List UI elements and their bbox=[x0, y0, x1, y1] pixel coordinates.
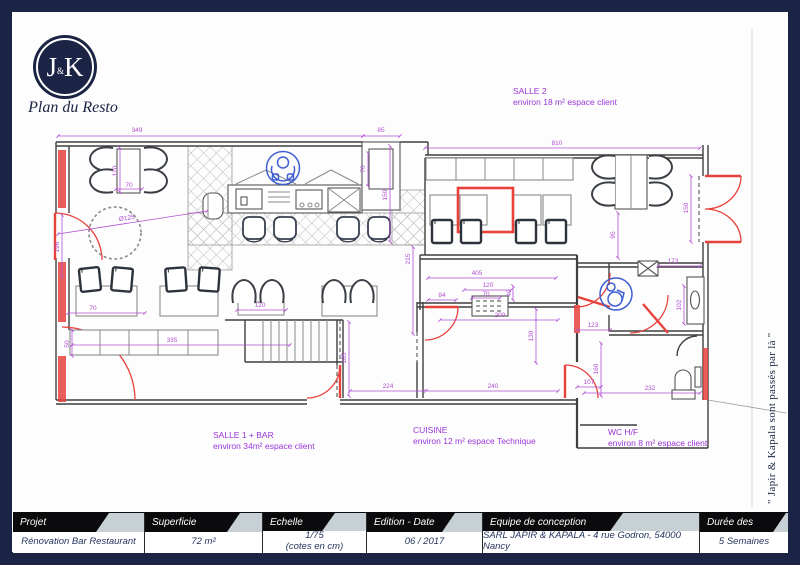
bartender-icon bbox=[267, 152, 300, 185]
room-info-salle2: environ 18 m² espace client bbox=[513, 97, 618, 107]
tb-header-edition-date: Edition - Date bbox=[367, 513, 455, 532]
tb-value-duree: 5 Semaines bbox=[700, 532, 788, 553]
tb-header-echelle: Echelle bbox=[263, 513, 335, 531]
dim-label: 224 bbox=[383, 383, 394, 390]
dim-label: 173 bbox=[668, 258, 679, 265]
dim-label: 107 bbox=[584, 379, 595, 386]
dim-label: 70 bbox=[89, 305, 97, 312]
dim-label: 200 bbox=[495, 312, 506, 319]
tb-col-duree: Durée des travaux 5 Semaines bbox=[700, 513, 788, 553]
dim-label: 50 bbox=[64, 340, 71, 348]
tb-col-echelle: Echelle 1/75(cotes en cm) bbox=[263, 513, 367, 553]
tb-col-equipe: Equipe de conception SARL JAPIR & KAPALA… bbox=[483, 513, 700, 553]
dim-label: 150 bbox=[683, 202, 690, 213]
dim-label: 185 bbox=[341, 352, 348, 363]
dim-label: 349 bbox=[132, 127, 143, 134]
room-label-salle2: SALLE 2 bbox=[513, 86, 547, 96]
room-info-cuisine: environ 12 m² espace Technique bbox=[413, 436, 536, 446]
tb-col-projet: Projet Rénovation Bar Restaurant bbox=[13, 513, 145, 553]
tb-col-superficie: Superficie 72 m² bbox=[145, 513, 263, 553]
dim-label: 215 bbox=[405, 253, 412, 264]
dim-label: 70 bbox=[125, 182, 133, 189]
dim-label: 150 bbox=[382, 189, 389, 200]
room-info-salle1: environ 34m² espace client bbox=[213, 441, 315, 451]
dim-label: 40 bbox=[506, 289, 513, 297]
dim-label: Ø125 bbox=[118, 214, 135, 223]
dim-label: 102 bbox=[676, 299, 683, 310]
wheelchair-icon bbox=[600, 278, 632, 310]
dim-label: 405 bbox=[472, 270, 483, 277]
dim-label: 95 bbox=[610, 231, 617, 239]
room-label-wc: WC H/F bbox=[608, 427, 638, 437]
dim-label: 85 bbox=[377, 127, 385, 134]
dim-label: 232 bbox=[645, 385, 656, 392]
dim-label: 196 bbox=[54, 241, 61, 252]
dim-label: 160 bbox=[593, 363, 600, 374]
stairs bbox=[263, 320, 327, 362]
title-block: Projet Rénovation Bar Restaurant Superfi… bbox=[13, 512, 788, 553]
room-label-cuisine: CUISINE bbox=[413, 425, 448, 435]
dim-label: 120 bbox=[255, 302, 266, 309]
room-info-wc: environ 8 m² espace client bbox=[608, 438, 708, 448]
room-labels: SALLE 2 environ 18 m² espace client SALL… bbox=[213, 86, 708, 451]
room-label-salle1: SALLE 1 + BAR bbox=[213, 430, 274, 440]
dim-label: 84 bbox=[438, 292, 446, 299]
floor-plan-svg: 349 85 810 120 70 Ø125 196 70 50 335 120… bbox=[0, 0, 800, 565]
tb-value-superficie: 72 m² bbox=[145, 532, 262, 553]
dim-label: 240 bbox=[488, 383, 499, 390]
dim-label: 335 bbox=[167, 337, 178, 344]
tb-value-edition-date: 06 / 2017 bbox=[367, 532, 482, 553]
dim-label: 70 bbox=[360, 165, 367, 173]
dim-label: 123 bbox=[588, 322, 599, 329]
tb-value-projet: Rénovation Bar Restaurant bbox=[13, 532, 144, 553]
tb-header-projet: Projet bbox=[13, 513, 109, 532]
dim-label: 810 bbox=[552, 140, 563, 147]
tb-header-superficie: Superficie bbox=[145, 513, 240, 532]
dim-label: 130 bbox=[528, 330, 535, 341]
margin-signature-note: " Japir & Kapala sont passés par là " bbox=[766, 358, 790, 504]
tb-value-equipe: SARL JAPIR & KAPALA - 4 rue Godron, 5400… bbox=[483, 531, 699, 553]
dim-label: 120 bbox=[483, 282, 494, 289]
tb-header-duree: Durée des travaux bbox=[700, 513, 786, 532]
dim-label: 70 bbox=[482, 291, 490, 298]
tb-value-echelle: 1/75(cotes en cm) bbox=[263, 531, 366, 553]
dim-label: 120 bbox=[112, 165, 119, 176]
tb-col-edition-date: Edition - Date 06 / 2017 bbox=[367, 513, 483, 553]
drawing-page: J&K Plan du Resto bbox=[0, 0, 800, 565]
tb-header-equipe: Equipe de conception bbox=[483, 513, 623, 531]
